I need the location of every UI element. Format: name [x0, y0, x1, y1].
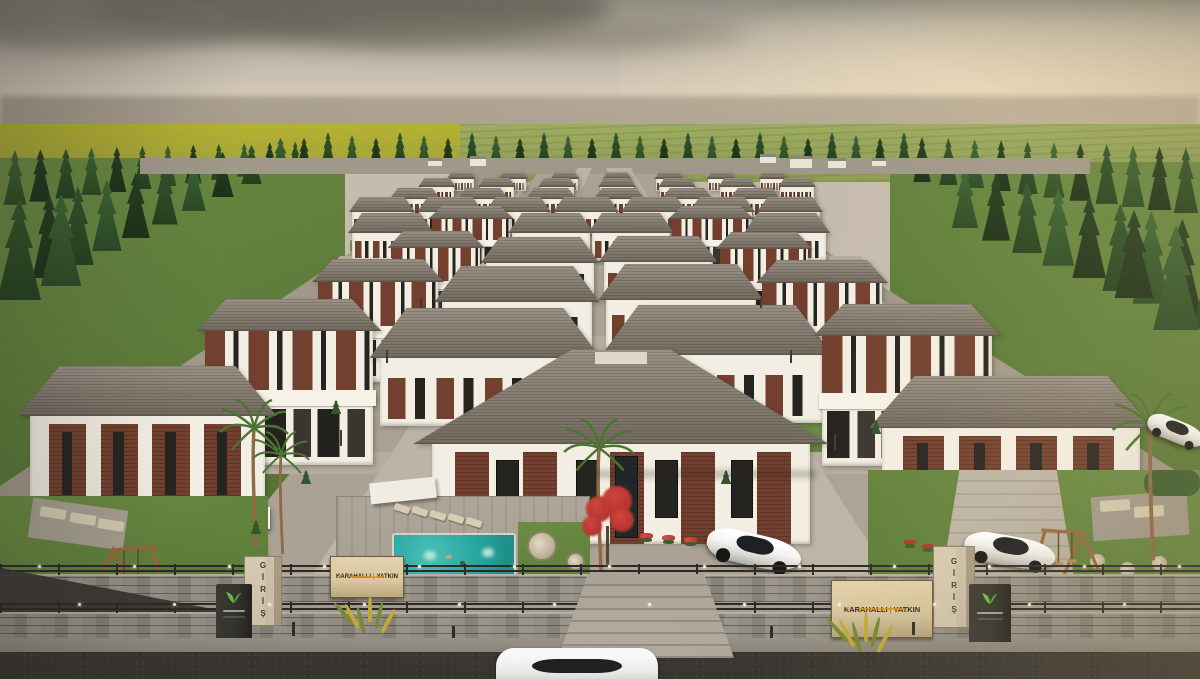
brick-pier — [757, 452, 791, 544]
street-lamp — [834, 434, 836, 450]
fence-light — [133, 565, 136, 568]
fence-light — [553, 603, 556, 606]
project-sign-post-left — [216, 584, 252, 638]
entrance-pillar-text: GİRİŞ — [950, 557, 959, 617]
pool-light — [482, 548, 494, 557]
red-canopy — [610, 508, 634, 532]
project-sign-post-right — [969, 584, 1011, 642]
fence-light — [513, 565, 516, 568]
fence-light — [608, 565, 611, 568]
villa-roof — [756, 260, 888, 283]
villa-roof — [599, 236, 718, 262]
egg-chair — [527, 531, 557, 561]
planter-leaves — [923, 548, 933, 552]
far-villa — [760, 154, 776, 163]
villa-roof — [312, 259, 444, 282]
yellow-flower-bush — [842, 602, 890, 646]
palm-tree — [1106, 386, 1196, 566]
planter-leaves — [663, 540, 674, 544]
post-text-line — [977, 612, 1002, 614]
fence-light — [933, 603, 936, 606]
fence-light — [323, 565, 326, 568]
fence-light — [418, 565, 421, 568]
villa-roof — [658, 178, 695, 187]
red-maple-tree — [580, 486, 636, 566]
upper-window — [113, 432, 124, 495]
green-leaf-logo-icon — [225, 590, 243, 604]
street-lamp — [386, 350, 388, 363]
window — [731, 460, 754, 518]
car-glass — [735, 533, 776, 558]
villa-roof — [435, 266, 600, 302]
post-text-line — [977, 618, 1002, 620]
car-glass — [991, 535, 1030, 557]
red-canopy — [582, 516, 602, 536]
window — [655, 460, 678, 518]
tree-trunk — [606, 526, 609, 566]
pool-light — [424, 551, 436, 560]
fence-light — [38, 565, 41, 568]
villa-roof — [349, 197, 415, 212]
upper-window — [62, 432, 73, 495]
post-text-line — [223, 616, 245, 618]
villa-roof — [348, 213, 434, 233]
villa-roof — [418, 178, 455, 187]
fence-light — [1083, 565, 1086, 568]
fence-light — [798, 565, 801, 568]
white-car-partial — [496, 648, 658, 679]
planter-leaves — [685, 542, 696, 546]
fence-light — [268, 603, 271, 606]
fence-light — [838, 603, 841, 606]
flower-planter — [904, 540, 916, 549]
fence-light — [893, 565, 896, 568]
flower-planter — [640, 533, 653, 543]
palm-tree — [248, 430, 314, 554]
villa-roof — [744, 213, 830, 233]
villa-roof — [508, 213, 594, 233]
villa-roof — [716, 232, 813, 249]
villa-roof — [553, 197, 619, 212]
villa-roof — [428, 206, 514, 219]
fence-light — [743, 603, 746, 606]
yellow-flower-bush — [346, 588, 388, 626]
street-lamp — [420, 298, 422, 308]
villa-roof — [599, 264, 764, 300]
car-glass — [532, 659, 623, 673]
far-villa — [428, 158, 442, 166]
villa-roof — [718, 178, 755, 187]
far-villa — [872, 158, 886, 166]
flower-planter — [684, 537, 697, 547]
swimmer — [446, 555, 452, 559]
leaf-blade — [374, 601, 384, 628]
roof-clerestory — [595, 352, 648, 366]
fence-light — [1028, 603, 1031, 606]
villa-roof — [602, 305, 833, 355]
fence-light — [78, 603, 81, 606]
leaf-blade — [368, 596, 372, 623]
villa-roof — [778, 178, 815, 187]
villa-roof — [478, 178, 515, 187]
villa-roof — [197, 299, 382, 331]
entry-driveway — [558, 574, 734, 658]
bollard — [912, 622, 915, 635]
street-lamp — [790, 350, 792, 363]
fence-light — [363, 603, 366, 606]
far-villa — [790, 156, 812, 168]
bollard — [452, 626, 455, 638]
villa-roof — [757, 197, 823, 212]
far-villa — [828, 158, 846, 168]
fence-light — [458, 603, 461, 606]
bollard — [770, 626, 773, 638]
sign-subtext-line — [350, 576, 383, 578]
flower-planter — [662, 535, 675, 545]
car-wheel — [715, 547, 731, 563]
villa-roof — [388, 231, 485, 248]
leaf-blade — [864, 611, 868, 642]
brick-pier — [681, 452, 715, 544]
street-lamp — [760, 298, 762, 308]
entrance-pillar-text: GİRİŞ — [259, 561, 268, 621]
post-text-line — [223, 610, 245, 612]
fence-railing-inner — [0, 564, 1200, 575]
villa-roof — [481, 237, 600, 263]
planter-leaves — [905, 544, 915, 548]
villa-roof — [588, 213, 674, 233]
far-villa — [470, 156, 486, 166]
street-lamp — [340, 430, 342, 446]
fence-light — [1178, 565, 1181, 568]
upper-window — [165, 432, 176, 495]
bollard — [292, 622, 295, 636]
fence-light — [173, 603, 176, 606]
fence-light — [703, 565, 706, 568]
entry-door-shadow — [596, 470, 816, 478]
fence-light — [1123, 603, 1126, 606]
green-leaf-logo-icon — [981, 591, 999, 605]
planter-leaves — [641, 538, 652, 542]
villa-roof — [538, 178, 575, 187]
fence-light — [988, 565, 991, 568]
fence-light — [648, 603, 651, 606]
fence-light — [228, 565, 231, 568]
sign-arrow-icon: ◄ — [336, 574, 342, 580]
villa-roof — [668, 206, 754, 219]
aerial-villa-complex-render: GİRİŞ GİRİŞ ◄ KARAHALLI | — [0, 0, 1200, 679]
villa-roof — [598, 178, 635, 187]
villa-roof — [814, 304, 1001, 336]
